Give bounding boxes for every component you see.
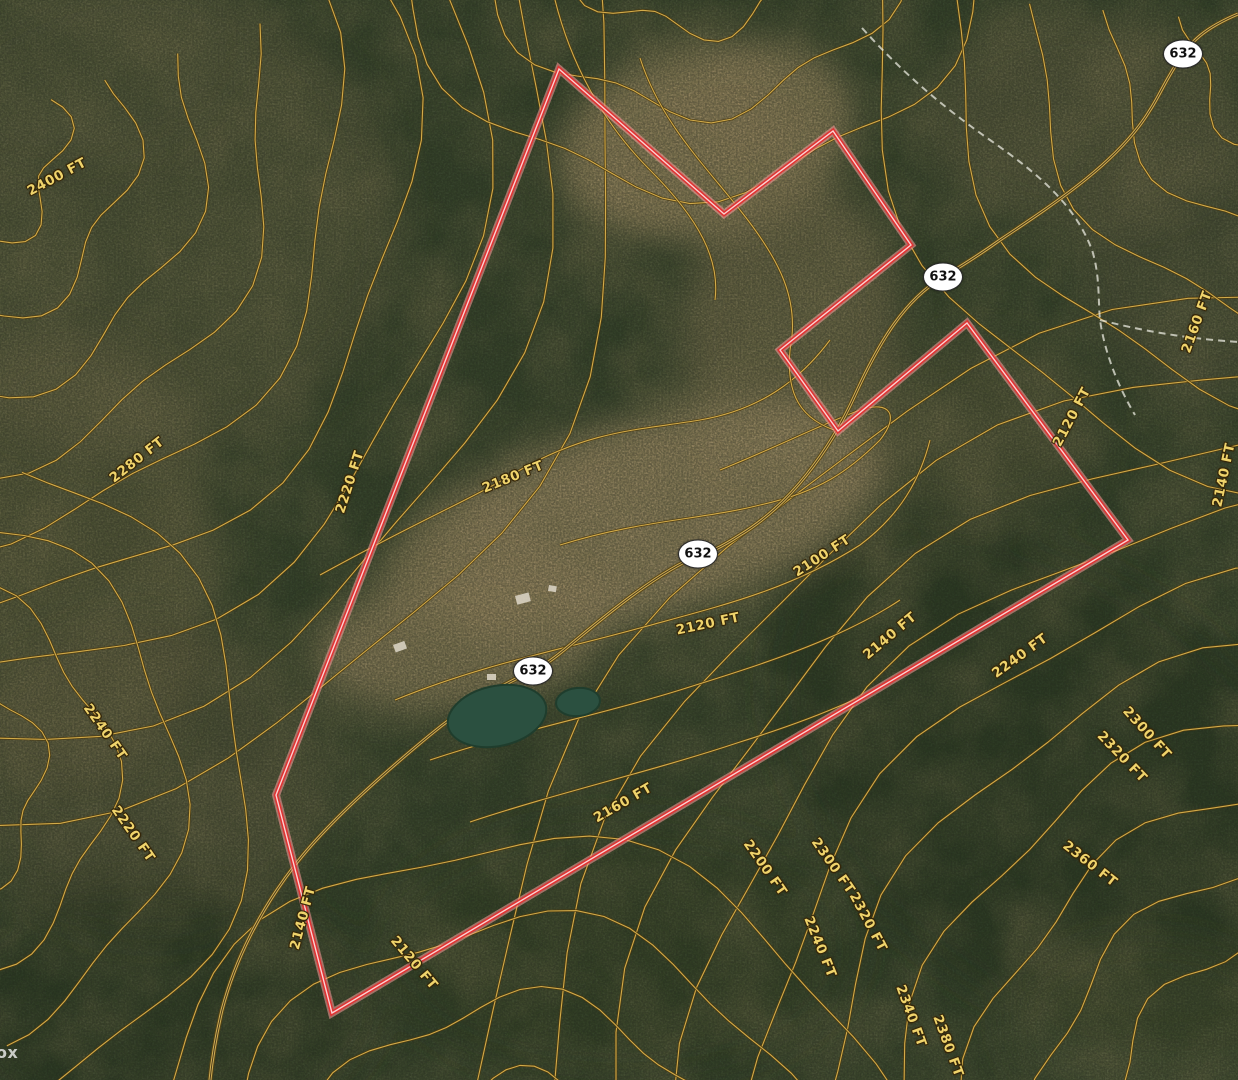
map-canvas[interactable]: 2400 FT2280 FT2220 FT2180 FT2160 FT2120 …	[0, 0, 1238, 1080]
route-632-badge: 632	[923, 263, 963, 292]
satellite-terrain-layer	[0, 0, 1238, 1080]
route-632-badge: 632	[1163, 40, 1203, 69]
mapbox-watermark-partial[interactable]: ox	[0, 1043, 18, 1062]
route-632-badge: 632	[513, 657, 553, 686]
building	[487, 674, 496, 680]
route-632-badge: 632	[678, 540, 718, 569]
